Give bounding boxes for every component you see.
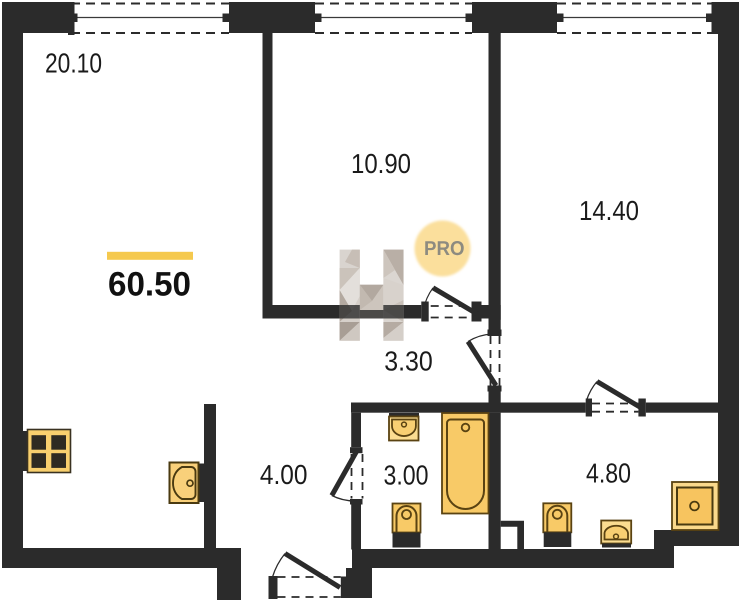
svg-text:14.40: 14.40 xyxy=(579,195,639,226)
svg-text:4.00: 4.00 xyxy=(260,459,308,490)
svg-text:60.50: 60.50 xyxy=(108,265,191,303)
svg-text:PRO: PRO xyxy=(424,238,465,260)
svg-text:3.30: 3.30 xyxy=(384,346,433,377)
svg-text:10.90: 10.90 xyxy=(351,148,411,179)
svg-text:20.10: 20.10 xyxy=(45,47,102,78)
svg-text:4.80: 4.80 xyxy=(586,457,631,488)
svg-text:3.00: 3.00 xyxy=(384,460,429,491)
